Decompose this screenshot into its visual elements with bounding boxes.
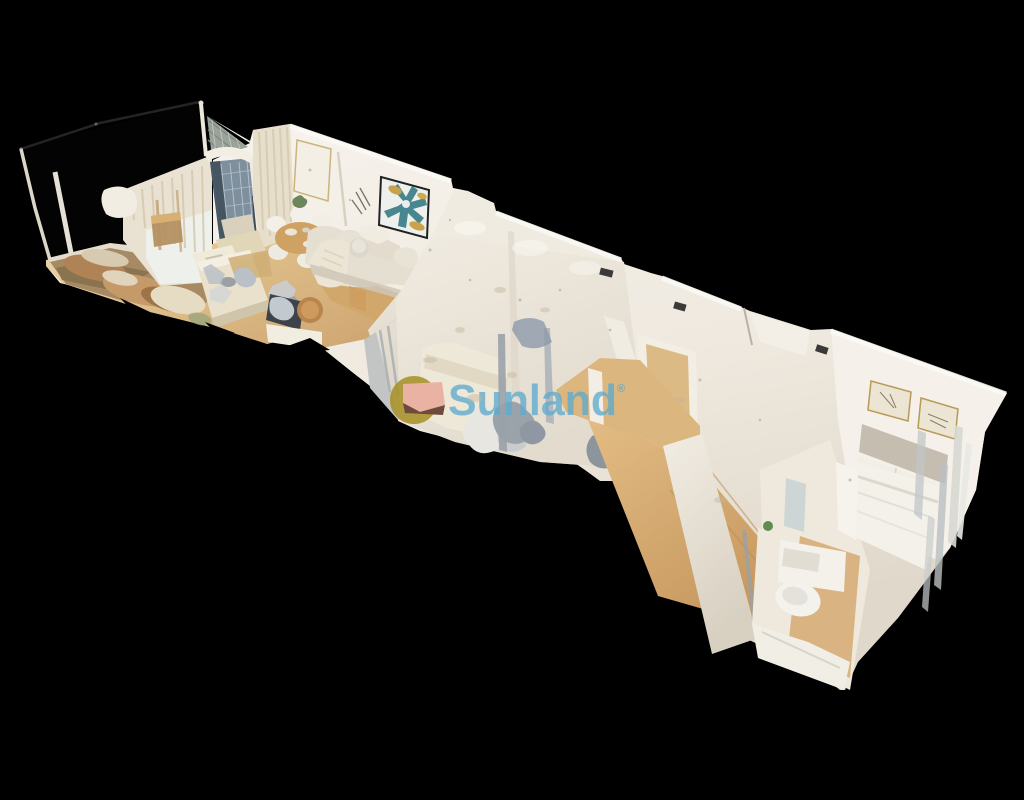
svg-text:®: ® [617,383,625,395]
